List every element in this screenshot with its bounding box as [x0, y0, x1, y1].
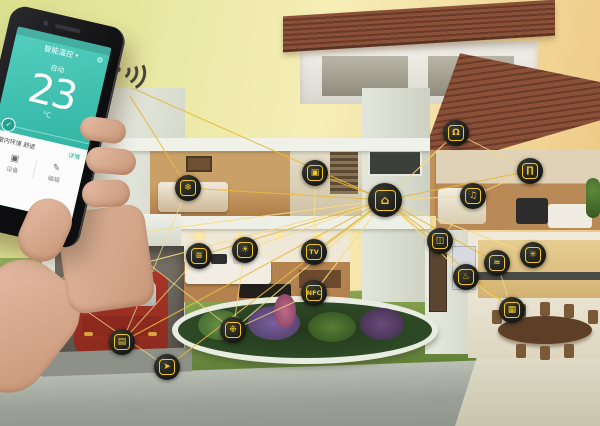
app-title: 智能温控 [43, 43, 75, 60]
smart-home-gateway-icon[interactable]: ⌂ [368, 183, 402, 217]
menu-item-label: 设备 [6, 164, 20, 175]
finger [82, 179, 131, 208]
phone-camera-dot [43, 20, 49, 26]
window-blinds-glyph: ≡ [191, 248, 207, 264]
window-blinds-icon[interactable]: ≡ [186, 243, 212, 269]
door-sensor-glyph: ◫ [432, 233, 448, 249]
shield-badge: ✓ [0, 116, 17, 133]
garden-sprinkler-glyph: ❉ [225, 322, 241, 338]
menu-item-label: 编辑 [47, 173, 61, 184]
stove-glyph: ♨ [458, 269, 474, 285]
smart-home-scene: ⌂❄◉▣Ω∏♫≡☀TVNFC◫♨≈✳▦⚡▤❉➤ 智能温控 ▾ ⚙ 自动 23 °… [0, 0, 600, 426]
motion-sensor-icon[interactable]: ➤ [154, 354, 180, 380]
door-sensor-icon[interactable]: ◫ [427, 228, 453, 254]
water-valve-icon[interactable]: ≈ [484, 250, 510, 276]
garage-door-icon[interactable]: ▤ [109, 329, 135, 355]
water-valve-glyph: ≈ [489, 255, 505, 271]
oven-glyph: ▦ [504, 302, 520, 318]
wifi-nfc-icon[interactable]: NFC [301, 280, 327, 306]
motion-sensor-glyph: ➤ [159, 359, 175, 375]
finger [85, 146, 137, 176]
curtain-control-icon[interactable]: ∏ [517, 158, 543, 184]
chevron-down-icon: ▾ [75, 52, 80, 59]
computer-glyph: ▣ [307, 165, 323, 181]
air-conditioner-glyph: ❄ [180, 180, 196, 196]
check-icon: ✓ [5, 120, 13, 129]
phone-speaker [55, 24, 81, 34]
curtain-control-glyph: ∏ [522, 163, 538, 179]
oven-icon[interactable]: ▦ [499, 297, 525, 323]
alarm-siren-icon[interactable]: Ω [443, 120, 469, 146]
computer-icon[interactable]: ▣ [302, 160, 328, 186]
menu-item-edit[interactable]: ✎ 编辑 [33, 159, 78, 188]
status-row-link[interactable]: 详情 [67, 150, 81, 161]
menu-item-devices[interactable]: ▣ 设备 [0, 149, 36, 178]
smart-light-icon[interactable]: ☀ [232, 237, 258, 263]
smart-tv-glyph: TV [306, 244, 322, 260]
wifi-nfc-glyph: NFC [306, 285, 322, 301]
devices-icon: ▣ [9, 153, 20, 165]
audio-system-icon[interactable]: ♫ [460, 183, 486, 209]
smart-tv-icon[interactable]: TV [301, 239, 327, 265]
smart-light-glyph: ☀ [237, 242, 253, 258]
vent-fan-icon[interactable]: ✳ [520, 242, 546, 268]
garden-sprinkler-icon[interactable]: ❉ [220, 317, 246, 343]
settings-gear-icon[interactable]: ⚙ [95, 55, 104, 65]
edit-icon: ✎ [51, 163, 61, 174]
alarm-siren-glyph: Ω [448, 125, 464, 141]
smart-home-gateway-glyph: ⌂ [375, 190, 396, 211]
audio-system-glyph: ♫ [465, 188, 481, 204]
stove-icon[interactable]: ♨ [453, 264, 479, 290]
vent-fan-glyph: ✳ [525, 247, 541, 263]
air-conditioner-icon[interactable]: ❄ [175, 175, 201, 201]
garage-door-glyph: ▤ [114, 334, 130, 350]
